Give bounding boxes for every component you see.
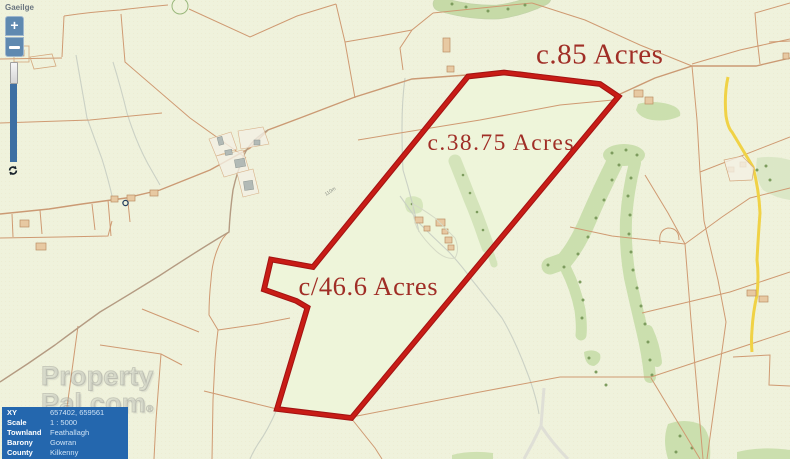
svg-text:c.85 Acres: c.85 Acres xyxy=(536,39,663,71)
svg-text:c.38.75 Acres: c.38.75 Acres xyxy=(428,130,575,156)
svg-text:c/46.6 Acres: c/46.6 Acres xyxy=(299,271,439,301)
